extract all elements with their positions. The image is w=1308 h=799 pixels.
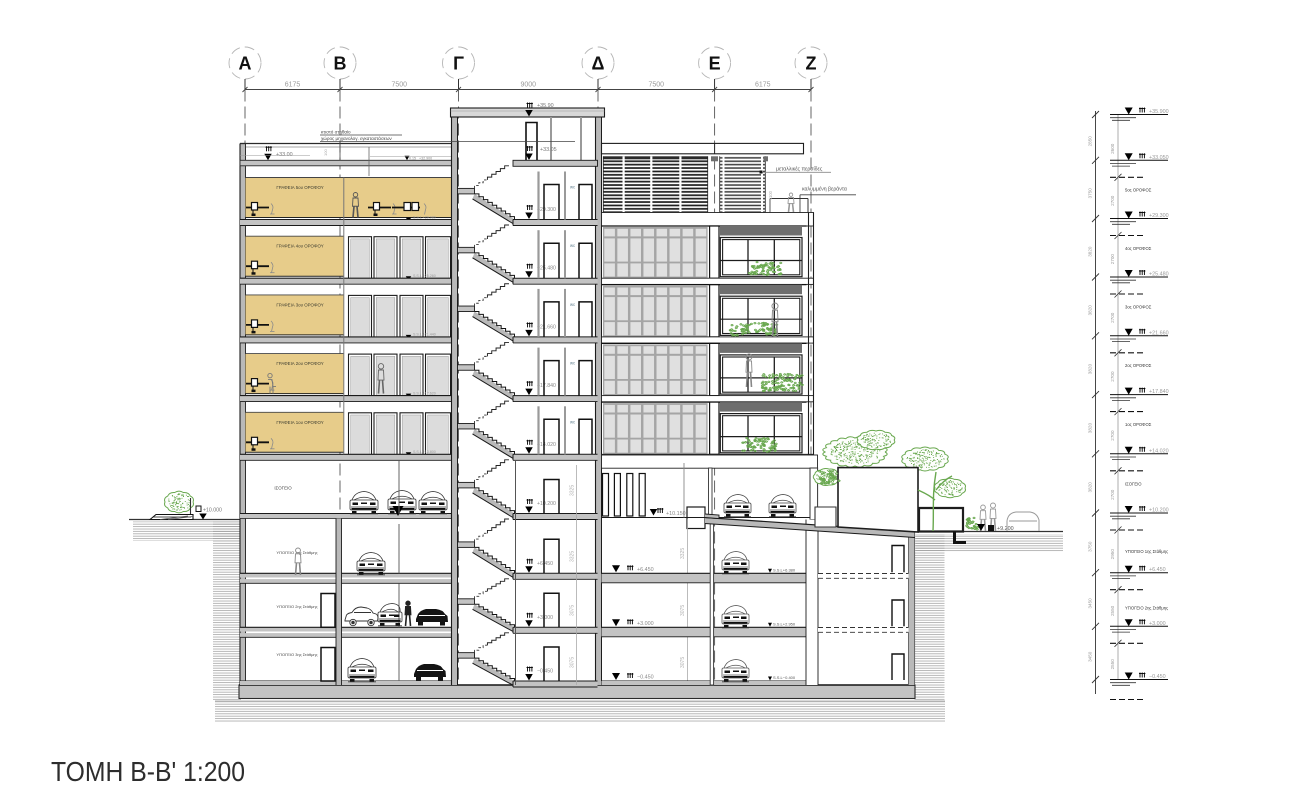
svg-text:2850: 2850 <box>1088 136 1093 147</box>
svg-text:3820: 3820 <box>1088 423 1093 434</box>
svg-text:ΓΡΑΦΕΙΑ 3ου ΟΡΟΦΟΥ: ΓΡΑΦΕΙΑ 3ου ΟΡΟΦΟΥ <box>276 302 323 307</box>
svg-text:3325: 3325 <box>570 485 576 496</box>
svg-text:καλυμμένη βεράντα: καλυμμένη βεράντα <box>802 186 847 193</box>
svg-text:+14.020: +14.020 <box>1149 448 1169 454</box>
svg-text:+21.660: +21.660 <box>1149 330 1169 336</box>
svg-text:6175: 6175 <box>285 82 301 89</box>
svg-text:+14.020: +14.020 <box>537 442 556 448</box>
svg-text:S.S.L +25.260: S.S.L +25.260 <box>413 274 436 278</box>
svg-text:ΥΠΟΓΕΙΟ 3ης Στάθμης: ΥΠΟΓΕΙΟ 3ης Στάθμης <box>276 652 317 657</box>
svg-text:μεταλλικές περσίδες: μεταλλικές περσίδες <box>776 166 823 173</box>
svg-text:3075: 3075 <box>680 657 686 668</box>
svg-text:3820: 3820 <box>1088 305 1093 316</box>
svg-text:2700: 2700 <box>1110 489 1115 500</box>
svg-text:2550: 2550 <box>1110 659 1115 670</box>
svg-text:χώρος μηχανολογ. εγκαταστάσεων: χώρος μηχανολογ. εγκαταστάσεων <box>321 135 392 141</box>
svg-text:2550: 2550 <box>1110 605 1115 616</box>
svg-text:7500: 7500 <box>649 82 665 89</box>
svg-text:wc: wc <box>570 419 575 424</box>
svg-text:E: E <box>709 54 721 74</box>
svg-text:wc: wc <box>570 302 575 307</box>
svg-text:+21.660: +21.660 <box>537 324 556 330</box>
svg-text:+33.00: +33.00 <box>276 152 293 158</box>
svg-text:3325: 3325 <box>680 548 686 559</box>
svg-text:−0.450: −0.450 <box>637 675 654 681</box>
svg-text:7500: 7500 <box>391 82 407 89</box>
svg-text:−0.450: −0.450 <box>537 669 553 675</box>
svg-text:A: A <box>239 54 252 74</box>
svg-text:−0.450: −0.450 <box>1149 674 1166 680</box>
svg-text:4ος ΟΡΟΦΟΣ: 4ος ΟΡΟΦΟΣ <box>1125 246 1152 251</box>
svg-text:3075: 3075 <box>680 605 686 616</box>
svg-text:+17.840: +17.840 <box>1149 389 1169 395</box>
svg-text:6175: 6175 <box>755 82 771 89</box>
svg-text:+35.90: +35.90 <box>537 103 554 109</box>
svg-text:3450: 3450 <box>1088 651 1093 662</box>
svg-text:2700: 2700 <box>1110 195 1115 206</box>
svg-text:ΥΠΟΓΕΙΟ 2ης Στάθμης: ΥΠΟΓΕΙΟ 2ης Στάθμης <box>1125 606 1168 611</box>
svg-text:+9.200: +9.200 <box>997 526 1014 532</box>
svg-text:ΓΡΑΦΕΙΑ 4ου ΟΡΟΦΟΥ: ΓΡΑΦΕΙΑ 4ου ΟΡΟΦΟΥ <box>276 244 323 249</box>
svg-text:2950: 2950 <box>1110 549 1115 560</box>
svg-text:S.S.L +13.800: S.S.L +13.800 <box>413 450 436 454</box>
svg-text:ΤΟΜΗ Β-Β' 1:200: ΤΟΜΗ Β-Β' 1:200 <box>51 756 245 787</box>
svg-text:+29.300: +29.300 <box>537 207 556 213</box>
svg-text:+35.900: +35.900 <box>1149 109 1169 115</box>
svg-text:+3.000: +3.000 <box>537 615 553 621</box>
svg-text:Γ: Γ <box>453 54 464 74</box>
svg-text:+29.300: +29.300 <box>1149 213 1169 219</box>
svg-text:2600: 2600 <box>1110 143 1115 154</box>
svg-text:3ος ΟΡΟΦΟΣ: 3ος ΟΡΟΦΟΣ <box>1125 304 1152 309</box>
svg-text:wc: wc <box>570 243 575 248</box>
svg-text:+33.050: +33.050 <box>1149 155 1169 161</box>
svg-text:S.S.L+2.950: S.S.L+2.950 <box>773 621 796 626</box>
svg-text:wc: wc <box>570 185 575 190</box>
svg-text:+6.450: +6.450 <box>637 567 654 573</box>
svg-text:+6.450: +6.450 <box>1149 567 1166 573</box>
svg-text:2ος ΟΡΟΦΟΣ: 2ος ΟΡΟΦΟΣ <box>1125 363 1152 368</box>
svg-text:+10.200: +10.200 <box>1149 508 1169 514</box>
svg-text:S.S.L +21.440: S.S.L +21.440 <box>413 333 436 337</box>
svg-text:3075: 3075 <box>570 657 576 668</box>
svg-text:ΓΡΑΦΕΙΑ 5ου ΟΡΟΦΟΥ: ΓΡΑΦΕΙΑ 5ου ΟΡΟΦΟΥ <box>276 185 323 190</box>
svg-text:+10.000: +10.000 <box>203 508 222 514</box>
svg-text:3750: 3750 <box>1088 188 1093 199</box>
svg-text:wc: wc <box>570 361 575 366</box>
svg-text:+33.05: +33.05 <box>540 147 557 153</box>
svg-text:2700: 2700 <box>1110 312 1115 323</box>
svg-text:ΙΣΟΓΕΙΟ: ΙΣΟΓΕΙΟ <box>274 486 292 491</box>
svg-text:+6.450: +6.450 <box>537 561 553 567</box>
svg-text:κτιστό στηθαίο: κτιστό στηθαίο <box>321 129 351 135</box>
svg-text:+3.000: +3.000 <box>637 621 654 627</box>
svg-text:S.S.L+6.380: S.S.L+6.380 <box>773 567 796 572</box>
svg-text:S.S.L +17.620: S.S.L +17.620 <box>413 391 436 395</box>
svg-text:3820: 3820 <box>1088 364 1093 375</box>
svg-text:1100: 1100 <box>768 190 773 200</box>
svg-text:S.S.L−0.400: S.S.L−0.400 <box>773 675 796 680</box>
svg-text:2700: 2700 <box>1110 254 1115 265</box>
svg-text:100: 100 <box>323 149 328 156</box>
svg-text:+17.840: +17.840 <box>537 383 556 389</box>
svg-text:B: B <box>334 54 347 74</box>
svg-text:ΥΠΟΓΕΙΟ 1ης Στάθμης: ΥΠΟΓΕΙΟ 1ης Στάθμης <box>1125 549 1168 554</box>
svg-text:3750: 3750 <box>1088 541 1093 552</box>
svg-text:+10.200: +10.200 <box>537 501 556 507</box>
svg-text:2700: 2700 <box>1110 371 1115 382</box>
svg-text:3820: 3820 <box>1088 482 1093 493</box>
svg-text:9000: 9000 <box>520 82 536 89</box>
svg-text:+3.000: +3.000 <box>1149 621 1166 627</box>
svg-text:+32.900: +32.900 <box>419 157 432 161</box>
svg-text:5ος ΟΡΟΦΟΣ: 5ος ΟΡΟΦΟΣ <box>1125 187 1152 192</box>
svg-text:2700: 2700 <box>1110 430 1115 441</box>
svg-text:1ος ΟΡΟΦΟΣ: 1ος ΟΡΟΦΟΣ <box>1125 422 1152 427</box>
svg-text:0.15: 0.15 <box>409 157 416 161</box>
svg-text:+25.480: +25.480 <box>1149 272 1169 278</box>
svg-text:S.S.L +29.080: S.S.L +29.080 <box>413 215 436 219</box>
svg-text:ΓΡΑΦΕΙΑ 1ου ΟΡΟΦΟΥ: ΓΡΑΦΕΙΑ 1ου ΟΡΟΦΟΥ <box>276 420 323 425</box>
svg-text:Z: Z <box>806 54 817 74</box>
svg-text:3450: 3450 <box>1088 598 1093 609</box>
svg-text:3075: 3075 <box>570 605 576 616</box>
svg-text:+25.480: +25.480 <box>537 266 556 272</box>
svg-text:Δ: Δ <box>592 54 605 74</box>
svg-text:ΓΡΑΦΕΙΑ 2ου ΟΡΟΦΟΥ: ΓΡΑΦΕΙΑ 2ου ΟΡΟΦΟΥ <box>276 361 323 366</box>
svg-text:3820: 3820 <box>1088 246 1093 257</box>
svg-text:+10.150: +10.150 <box>666 511 686 517</box>
svg-text:ΥΠΟΓΕΙΟ 2ης Στάθμης: ΥΠΟΓΕΙΟ 2ης Στάθμης <box>276 604 317 609</box>
svg-text:ΙΣΟΓΕΙΟ: ΙΣΟΓΕΙΟ <box>1125 481 1142 486</box>
svg-text:3325: 3325 <box>570 551 576 562</box>
